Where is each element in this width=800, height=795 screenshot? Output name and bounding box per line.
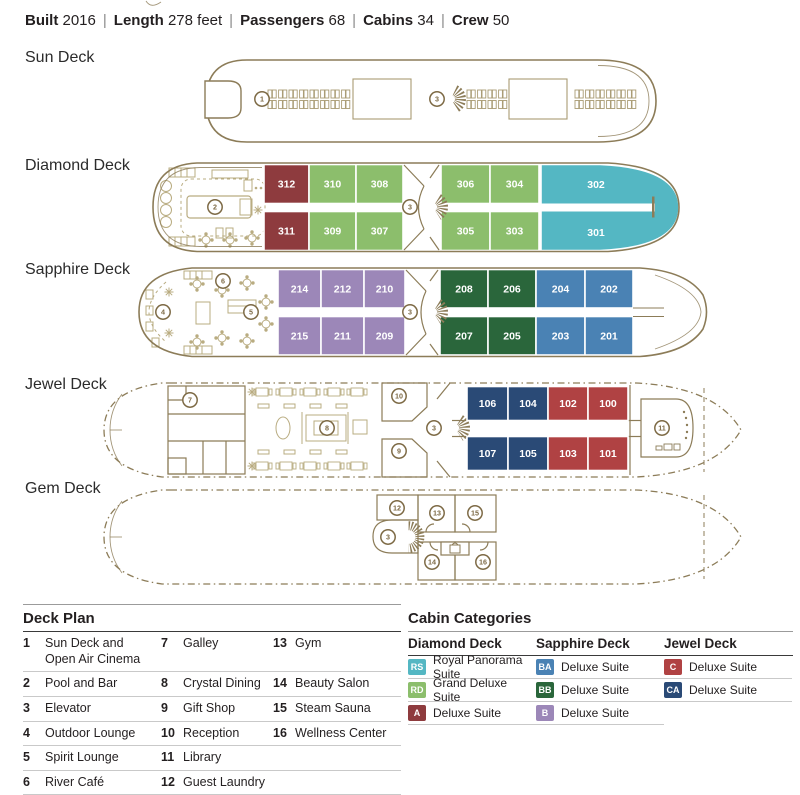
svg-text:305: 305 xyxy=(457,226,475,238)
jewel-elevator-stairs-fan xyxy=(460,420,465,436)
category-chip: BB xyxy=(536,682,554,698)
svg-text:311: 311 xyxy=(278,226,295,238)
deck-plan-legend-title: Deck Plan xyxy=(23,604,401,632)
svg-text:3: 3 xyxy=(435,95,439,104)
marker-sapphire-elevator: 3 xyxy=(403,305,417,319)
legend-row: 2Pool and Bar 8Crystal Dining 14Beauty S… xyxy=(23,672,401,697)
svg-text:212: 212 xyxy=(334,284,352,296)
category-row: CADeluxe Suite xyxy=(664,679,792,702)
legend-item: 9Gift Shop xyxy=(161,701,273,717)
svg-text:10: 10 xyxy=(395,392,403,401)
legend-row: 5Spirit Lounge 11Library xyxy=(23,746,401,771)
legend-item: 7Galley xyxy=(161,636,273,667)
svg-text:211: 211 xyxy=(334,331,351,343)
marker-sapphire-cafe: 6 xyxy=(216,274,230,288)
legend-item: 6River Café xyxy=(23,775,161,791)
legend-item: 8Crystal Dining xyxy=(161,676,273,692)
jewel-deck-plan: 106 104 102 100 107 105 103 101 7 8 10 9… xyxy=(104,383,741,477)
category-chip: RD xyxy=(408,682,426,698)
category-chip: CA xyxy=(664,682,682,698)
sun-hull-inner-line xyxy=(598,66,649,137)
legend-item: 11Library xyxy=(161,750,273,766)
marker-gem-wellness: 16 xyxy=(476,555,490,569)
category-deck-header: Diamond Deck xyxy=(408,632,536,655)
sun-deck-plan: 1 3 xyxy=(205,60,656,142)
gem-deck-plan: 12 3 13 15 14 16 xyxy=(104,490,741,584)
svg-text:4: 4 xyxy=(161,308,165,317)
svg-text:301: 301 xyxy=(587,227,605,239)
svg-text:202: 202 xyxy=(600,284,618,296)
svg-text:104: 104 xyxy=(519,398,537,410)
svg-text:207: 207 xyxy=(455,331,473,343)
svg-text:206: 206 xyxy=(503,284,521,296)
legend-row: 6River Café 12Guest Laundry xyxy=(23,771,401,795)
category-column-diamond: RSRoyal Panorama Suite RDGrand Deluxe Su… xyxy=(408,656,536,725)
jewel-hull xyxy=(104,383,741,477)
legend-row: 3Elevator 9Gift Shop 15Steam Sauna xyxy=(23,697,401,722)
svg-text:205: 205 xyxy=(503,331,521,343)
marker-gem-laundry: 12 xyxy=(390,501,404,515)
svg-text:310: 310 xyxy=(324,179,342,191)
gem-hull xyxy=(104,490,741,584)
legend-item: 14Beauty Salon xyxy=(273,676,401,692)
svg-text:12: 12 xyxy=(393,504,401,513)
marker-jewel-library: 11 xyxy=(655,421,669,435)
legend-item: 5Spirit Lounge xyxy=(23,750,161,766)
legend-item: 10Reception xyxy=(161,726,273,742)
bow-corridor xyxy=(541,204,655,212)
marker-sun-cinema: 1 xyxy=(255,92,269,106)
svg-text:208: 208 xyxy=(455,284,473,296)
marker-sun-elevator: 3 xyxy=(430,92,444,106)
diamond-deck-plan: 312 310 308 306 304 302 311 309 307 305 … xyxy=(153,163,679,252)
svg-text:201: 201 xyxy=(600,331,618,343)
marker-sapphire-spirit: 5 xyxy=(244,305,258,319)
svg-text:303: 303 xyxy=(506,226,524,238)
legend-item: 12Guest Laundry xyxy=(161,775,273,791)
svg-text:214: 214 xyxy=(291,284,309,296)
category-chip: A xyxy=(408,705,426,721)
category-row: CDeluxe Suite xyxy=(664,656,792,679)
category-chip: B xyxy=(536,705,554,721)
legend-item xyxy=(273,775,401,791)
category-row: BBDeluxe Suite xyxy=(536,679,664,702)
svg-text:3: 3 xyxy=(408,308,412,317)
marker-jewel-galley: 7 xyxy=(183,393,197,407)
jewel-galley-walls xyxy=(168,386,245,474)
category-row: BDeluxe Suite xyxy=(536,702,664,725)
category-column-jewel: CDeluxe Suite CADeluxe Suite xyxy=(664,656,792,725)
category-chip: RS xyxy=(408,659,426,675)
legend-row: 1Sun Deck and Open Air Cinema 7Galley 13… xyxy=(23,632,401,672)
svg-text:15: 15 xyxy=(471,509,479,518)
svg-text:100: 100 xyxy=(599,398,617,410)
svg-text:9: 9 xyxy=(397,447,401,456)
marker-jewel-reception: 10 xyxy=(392,389,406,403)
svg-text:103: 103 xyxy=(559,448,577,460)
svg-text:210: 210 xyxy=(376,284,394,296)
svg-text:106: 106 xyxy=(479,398,497,410)
marker-gem-elevator: 3 xyxy=(381,530,395,544)
svg-text:6: 6 xyxy=(221,277,225,286)
legend-item: 2Pool and Bar xyxy=(23,676,161,692)
legend-row: 4Outdoor Lounge 10Reception 16Wellness C… xyxy=(23,722,401,747)
marker-jewel-dining: 8 xyxy=(320,421,334,435)
cropped-title-remnant xyxy=(146,1,161,5)
svg-text:3: 3 xyxy=(386,533,390,542)
svg-text:107: 107 xyxy=(479,448,497,460)
svg-text:5: 5 xyxy=(249,308,253,317)
svg-text:101: 101 xyxy=(599,448,617,460)
sun-awning xyxy=(509,79,567,119)
category-row: ADeluxe Suite xyxy=(408,702,536,725)
marker-gem-beauty: 14 xyxy=(425,555,439,569)
svg-text:102: 102 xyxy=(559,398,577,410)
svg-text:8: 8 xyxy=(325,424,329,433)
svg-text:309: 309 xyxy=(324,226,342,238)
sun-lounge-chairs xyxy=(268,90,636,109)
legend-item: 4Outdoor Lounge xyxy=(23,726,161,742)
category-chip: C xyxy=(664,659,682,675)
sun-elevator-stairs-fan xyxy=(455,90,460,107)
category-chip: BA xyxy=(536,659,554,675)
category-deck-header: Sapphire Deck xyxy=(536,632,664,655)
marker-gem-sauna: 15 xyxy=(468,506,482,520)
marker-gem-gym: 13 xyxy=(430,506,444,520)
sun-stern-notch xyxy=(205,81,241,118)
marker-jewel-gift-shop: 9 xyxy=(392,444,406,458)
marker-diamond-pool: 2 xyxy=(208,200,222,214)
jewel-dining-furniture xyxy=(248,388,368,471)
svg-text:215: 215 xyxy=(291,331,309,343)
svg-text:307: 307 xyxy=(371,226,389,238)
svg-text:302: 302 xyxy=(587,179,605,191)
cabin-categories-title: Cabin Categories xyxy=(408,604,793,631)
legend-item: 13Gym xyxy=(273,636,401,667)
category-column-sapphire: BADeluxe Suite BBDeluxe Suite BDeluxe Su… xyxy=(536,656,664,725)
sun-cinema-screen xyxy=(353,79,411,119)
sapphire-cabins: 214 212 210 208 206 204 202 215 211 209 … xyxy=(278,270,633,356)
svg-text:16: 16 xyxy=(479,558,487,567)
svg-text:3: 3 xyxy=(408,203,412,212)
bow-mast xyxy=(652,197,655,218)
svg-text:209: 209 xyxy=(376,331,394,343)
svg-text:13: 13 xyxy=(433,509,441,518)
category-deck-header: Jewel Deck xyxy=(664,632,792,655)
svg-text:11: 11 xyxy=(658,424,666,433)
svg-text:1: 1 xyxy=(260,95,264,104)
svg-text:306: 306 xyxy=(457,179,475,191)
svg-text:204: 204 xyxy=(552,284,570,296)
svg-text:7: 7 xyxy=(188,396,192,405)
svg-text:203: 203 xyxy=(552,331,570,343)
svg-text:14: 14 xyxy=(428,558,436,567)
legend-item xyxy=(273,750,401,766)
legend-item: 1Sun Deck and Open Air Cinema xyxy=(23,636,161,667)
svg-text:308: 308 xyxy=(371,179,389,191)
svg-text:105: 105 xyxy=(519,448,537,460)
svg-text:304: 304 xyxy=(506,179,524,191)
deck-plan-legend: Deck Plan 1Sun Deck and Open Air Cinema … xyxy=(23,604,401,795)
cabin-categories-legend: Cabin Categories Diamond Deck Sapphire D… xyxy=(408,604,793,725)
legend-item: 16Wellness Center xyxy=(273,726,401,742)
category-row: RDGrand Deluxe Suite xyxy=(408,679,536,702)
marker-diamond-elevator: 3 xyxy=(403,200,417,214)
deck-plans-canvas: 1 3 xyxy=(0,0,800,600)
svg-text:2: 2 xyxy=(213,203,217,212)
legend-item: 3Elevator xyxy=(23,701,161,717)
category-row: BADeluxe Suite xyxy=(536,656,664,679)
sapphire-deck-plan: 214 212 210 208 206 204 202 215 211 209 … xyxy=(139,268,707,357)
marker-jewel-elevator: 3 xyxy=(427,421,441,435)
jewel-cabins: 106 104 102 100 107 105 103 101 xyxy=(467,387,628,471)
legend-item: 15Steam Sauna xyxy=(273,701,401,717)
svg-text:312: 312 xyxy=(278,179,296,191)
marker-sapphire-outdoor: 4 xyxy=(156,305,170,319)
svg-text:3: 3 xyxy=(432,424,436,433)
diamond-cabins: 312 310 308 306 304 302 311 309 307 305 … xyxy=(264,165,679,251)
